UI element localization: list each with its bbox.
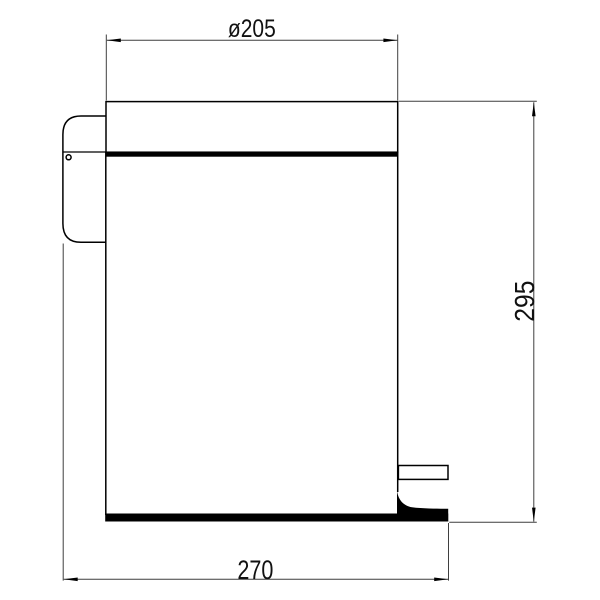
svg-text:ø205: ø205 [228, 14, 276, 42]
svg-text:270: 270 [237, 556, 273, 586]
svg-text:295: 295 [509, 281, 541, 322]
